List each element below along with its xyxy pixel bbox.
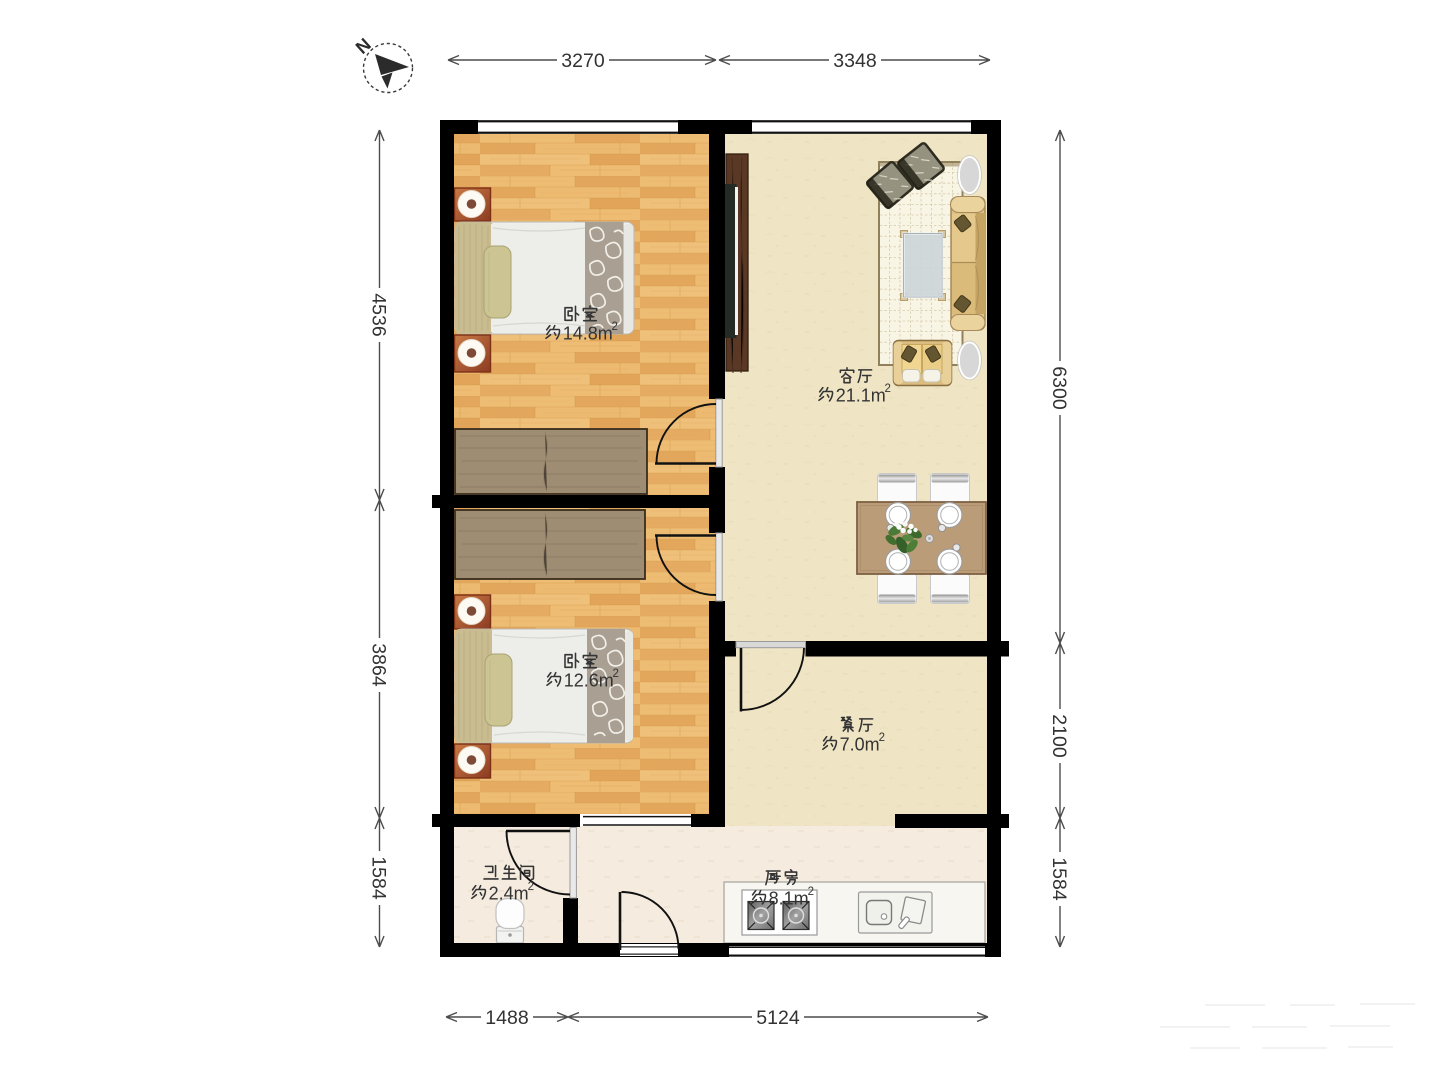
svg-text:2: 2 bbox=[528, 881, 534, 893]
svg-text:7.0m: 7.0m bbox=[840, 734, 880, 754]
svg-text:2: 2 bbox=[808, 886, 814, 898]
svg-text:4536: 4536 bbox=[368, 293, 390, 336]
svg-text:1584: 1584 bbox=[368, 856, 390, 900]
svg-text:3864: 3864 bbox=[368, 643, 390, 687]
svg-text:8.1m: 8.1m bbox=[769, 888, 809, 908]
svg-text:2: 2 bbox=[612, 321, 618, 333]
svg-text:1584: 1584 bbox=[1048, 857, 1070, 901]
svg-text:12.6m: 12.6m bbox=[564, 670, 614, 690]
svg-text:2.4m: 2.4m bbox=[489, 883, 529, 903]
svg-text:14.8m: 14.8m bbox=[563, 323, 613, 343]
svg-text:1488: 1488 bbox=[485, 1007, 528, 1029]
svg-text:3270: 3270 bbox=[561, 50, 605, 72]
svg-text:2: 2 bbox=[879, 732, 885, 744]
svg-text:2100: 2100 bbox=[1048, 714, 1070, 758]
svg-text:2: 2 bbox=[885, 383, 891, 395]
svg-text:2: 2 bbox=[613, 668, 619, 680]
svg-text:21.1m: 21.1m bbox=[836, 385, 886, 405]
svg-text:6300: 6300 bbox=[1048, 366, 1070, 410]
svg-text:5124: 5124 bbox=[756, 1007, 800, 1029]
svg-text:3348: 3348 bbox=[833, 50, 876, 72]
